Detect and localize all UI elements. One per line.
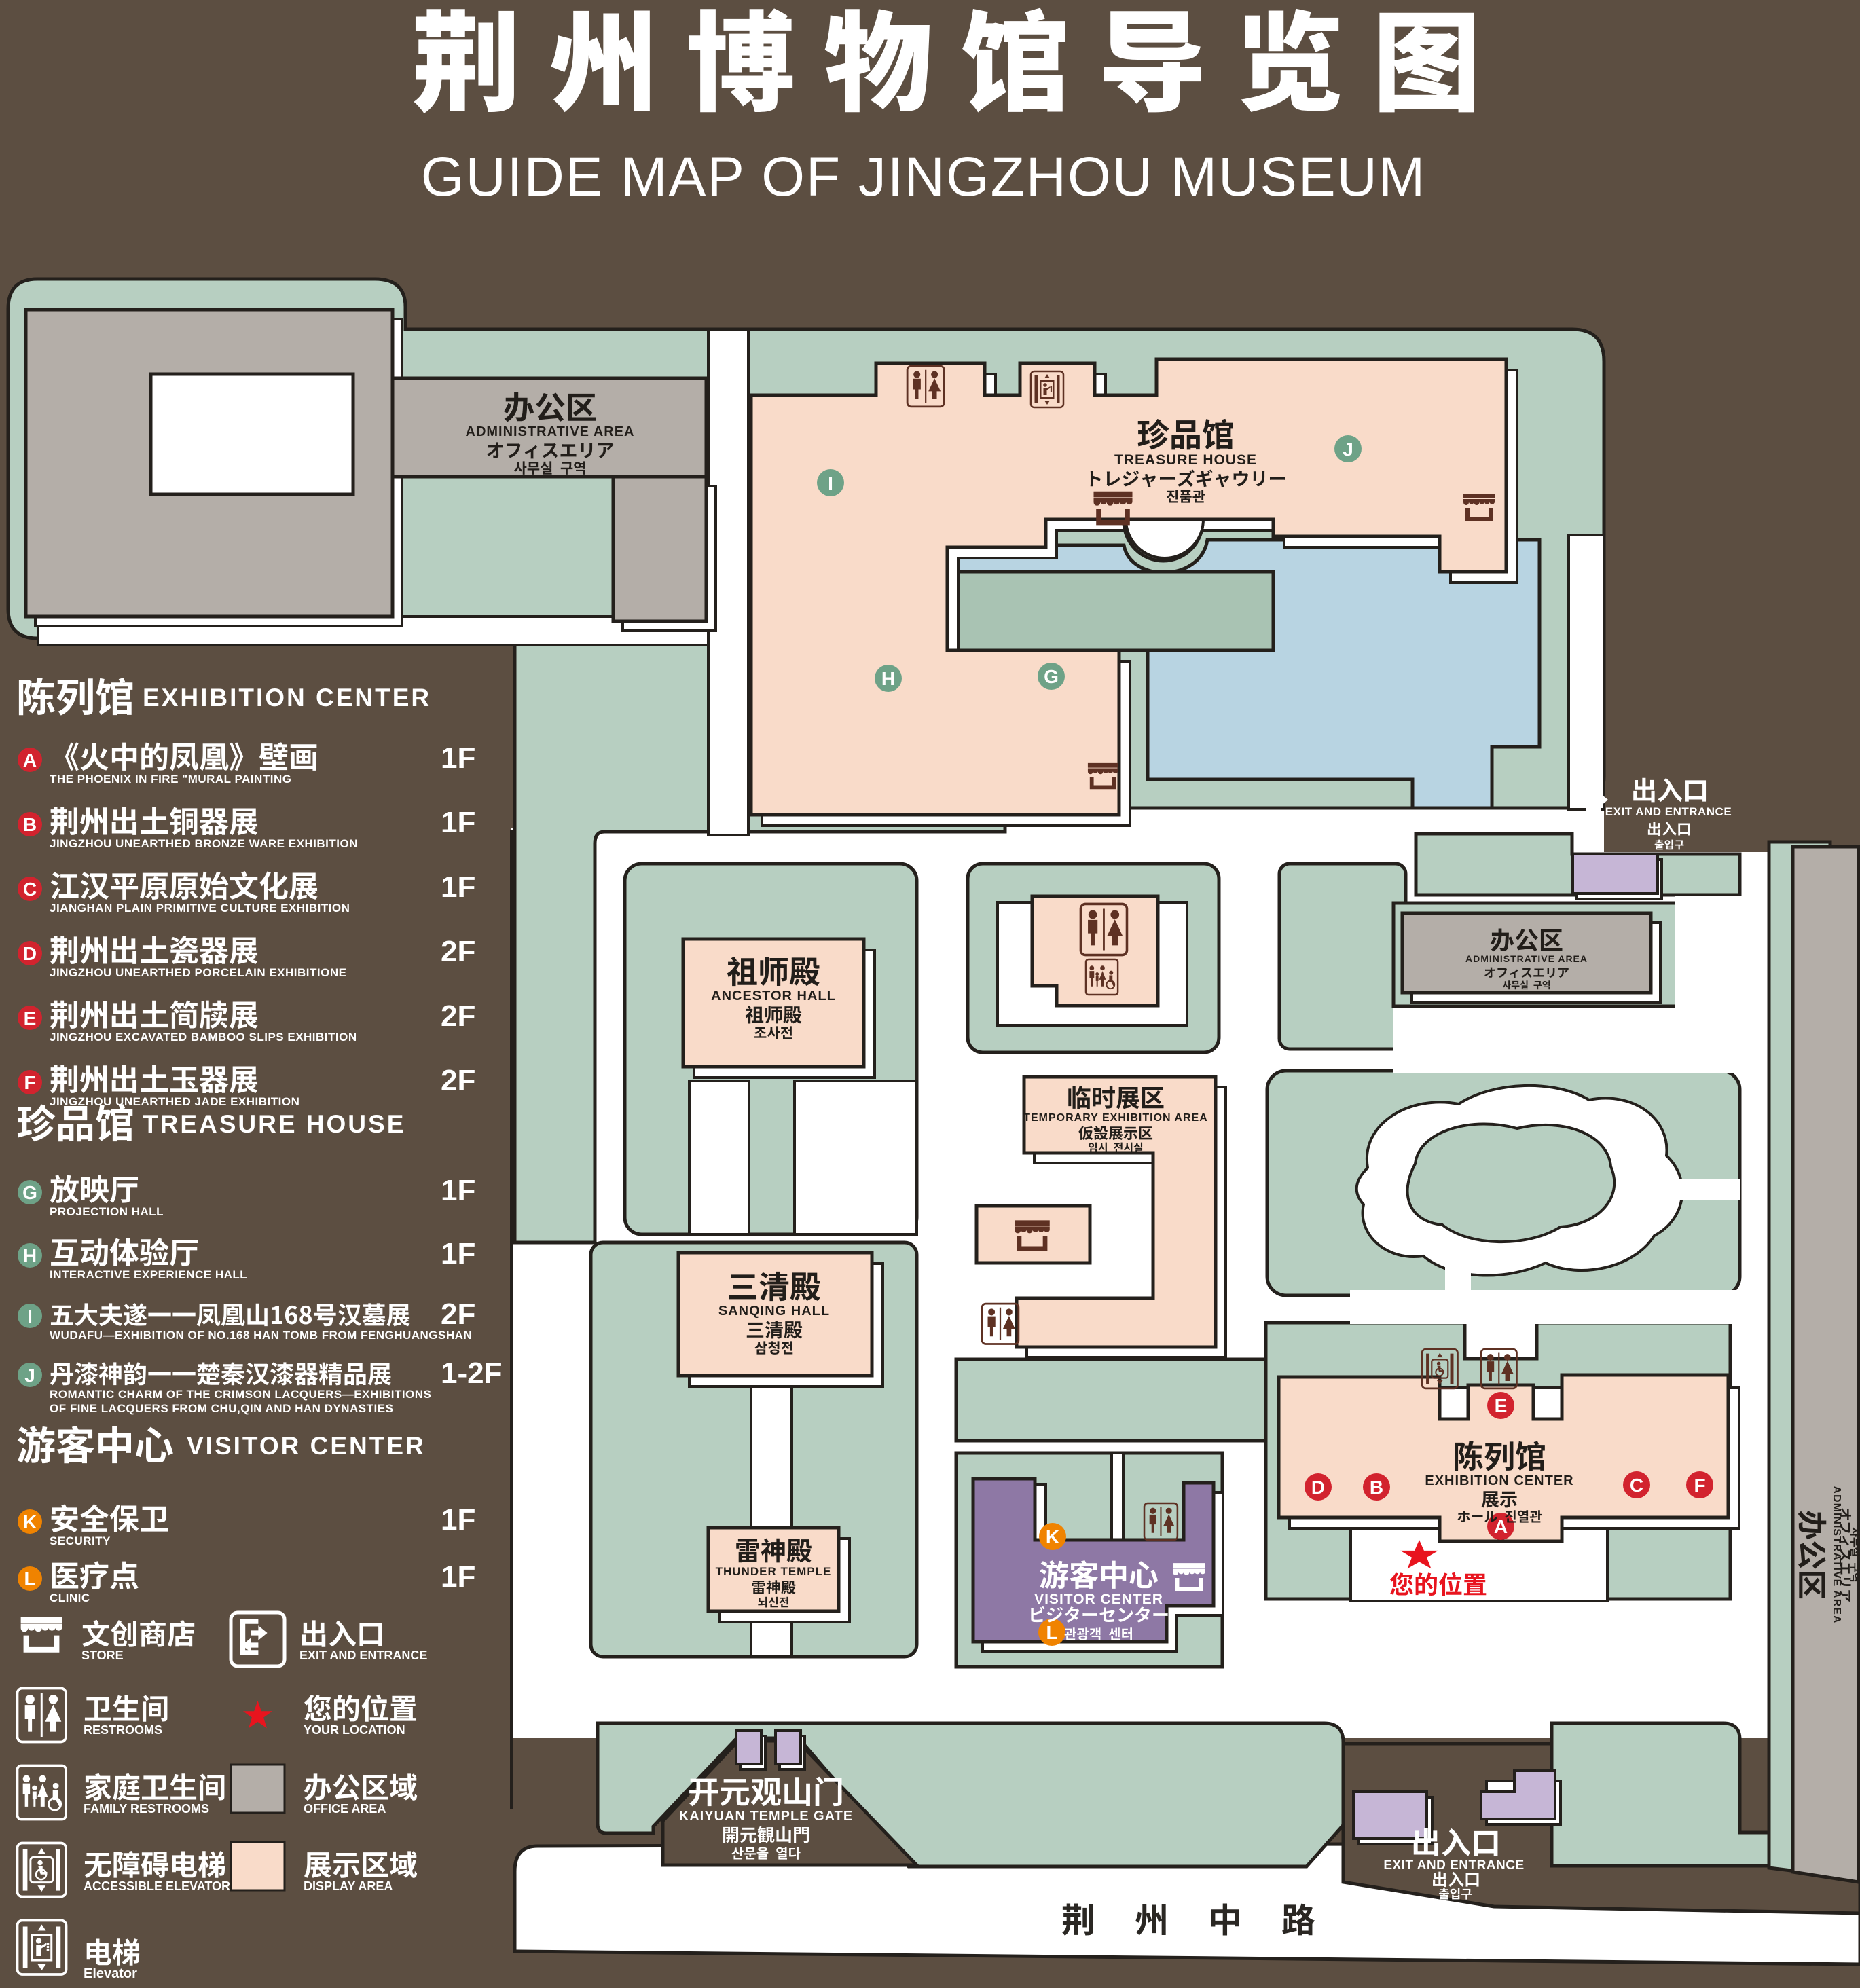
svg-text:EXHIBITION CENTER: EXHIBITION CENTER — [1425, 1473, 1573, 1488]
svg-text:THE PHOENIX IN FIRE "MURAL PAI: THE PHOENIX IN FIRE "MURAL PAINTING — [50, 773, 291, 786]
svg-text:ANCESTOR HALL: ANCESTOR HALL — [711, 989, 836, 1004]
svg-text:YOUR LOCATION: YOUR LOCATION — [304, 1723, 405, 1737]
svg-text:L: L — [1046, 1622, 1057, 1643]
svg-text:H: H — [23, 1245, 37, 1266]
svg-text:TREASURE HOUSE: TREASURE HOUSE — [1114, 452, 1257, 468]
svg-text:J: J — [1343, 439, 1353, 460]
svg-text:TEMPORARY EXHIBITION AREA: TEMPORARY EXHIBITION AREA — [1023, 1112, 1208, 1124]
svg-text:SECURITY: SECURITY — [50, 1534, 111, 1547]
svg-text:C: C — [1630, 1475, 1643, 1496]
svg-text:RESTROOMS: RESTROOMS — [84, 1723, 162, 1737]
svg-text:F: F — [1694, 1475, 1705, 1496]
svg-text:K: K — [1046, 1526, 1059, 1547]
svg-text:JINGZHOU EXCAVATED BAMBOO SLIP: JINGZHOU EXCAVATED BAMBOO SLIPS EXHIBITI… — [50, 1031, 357, 1044]
svg-text:FAMILY RESTROOMS: FAMILY RESTROOMS — [84, 1802, 209, 1816]
svg-text:DISPLAY AREA: DISPLAY AREA — [304, 1879, 393, 1893]
svg-text:2F: 2F — [441, 999, 475, 1033]
svg-text:E: E — [24, 1008, 37, 1029]
svg-text:1F: 1F — [441, 1237, 475, 1270]
svg-text:Elevator: Elevator — [84, 1966, 137, 1981]
svg-text:STORE: STORE — [81, 1649, 124, 1662]
svg-text:OFFICE AREA: OFFICE AREA — [304, 1802, 386, 1816]
svg-text:F: F — [24, 1072, 35, 1093]
svg-text:B: B — [1370, 1477, 1383, 1498]
svg-text:ADMINISTRATIVE AREA: ADMINISTRATIVE AREA — [466, 424, 635, 439]
svg-text:J: J — [24, 1365, 35, 1386]
svg-text:2F: 2F — [441, 935, 475, 968]
svg-text:JINGZHOU UNEARTHED PORCELAIN E: JINGZHOU UNEARTHED PORCELAIN EXHIBITIONE — [50, 966, 346, 979]
svg-text:1F: 1F — [441, 806, 475, 839]
svg-text:JINGZHOU UNEARTHED BRONZE WARE: JINGZHOU UNEARTHED BRONZE WARE EXHIBITIO… — [50, 837, 358, 850]
svg-text:1-2F: 1-2F — [441, 1357, 502, 1390]
svg-text:H: H — [881, 668, 895, 689]
svg-text:I: I — [27, 1306, 33, 1327]
svg-text:TREASURE HOUSE: TREASURE HOUSE — [143, 1110, 405, 1138]
svg-text:KAIYUAN TEMPLE GATE: KAIYUAN TEMPLE GATE — [679, 1809, 853, 1824]
svg-text:B: B — [23, 814, 37, 835]
svg-text:EXIT AND ENTRANCE: EXIT AND ENTRANCE — [1383, 1858, 1524, 1873]
svg-text:EXHIBITION CENTER: EXHIBITION CENTER — [143, 684, 431, 712]
svg-text:VISITOR CENTER: VISITOR CENTER — [1034, 1591, 1163, 1607]
svg-text:1F: 1F — [441, 1560, 475, 1594]
svg-text:ADMINISTRATIVE AREA: ADMINISTRATIVE AREA — [1831, 1486, 1842, 1624]
svg-text:G: G — [22, 1182, 37, 1203]
svg-text:SANQING HALL: SANQING HALL — [718, 1304, 830, 1319]
svg-text:ACCESSIBLE ELEVATOR: ACCESSIBLE ELEVATOR — [84, 1879, 230, 1893]
svg-text:1F: 1F — [441, 1503, 475, 1536]
svg-text:CLINIC: CLINIC — [50, 1591, 90, 1604]
svg-text:I: I — [828, 473, 833, 494]
svg-text:INTERACTIVE EXPERIENCE HALL: INTERACTIVE EXPERIENCE HALL — [50, 1268, 247, 1281]
svg-text:D: D — [1311, 1477, 1325, 1498]
svg-text:2F: 2F — [441, 1064, 475, 1097]
svg-text:OF FINE LACQUERS FROM CHU,QIN: OF FINE LACQUERS FROM CHU,QIN AND HAN DY… — [50, 1402, 393, 1415]
svg-text:JIANGHAN PLAIN PRIMITIVE CULTU: JIANGHAN PLAIN PRIMITIVE CULTURE EXHIBIT… — [50, 902, 350, 915]
svg-text:D: D — [23, 943, 37, 964]
svg-text:E: E — [1495, 1395, 1508, 1416]
svg-text:L: L — [24, 1568, 35, 1589]
svg-text:2F: 2F — [441, 1297, 475, 1331]
svg-text:ADMINISTRATIVE AREA: ADMINISTRATIVE AREA — [1465, 953, 1588, 964]
svg-text:G: G — [1044, 666, 1059, 687]
svg-text:C: C — [23, 879, 37, 900]
svg-text:ROMANTIC CHARM OF THE CRIMSON: ROMANTIC CHARM OF THE CRIMSON LACQUERS—E… — [50, 1388, 431, 1401]
svg-text:GUIDE MAP OF JINGZHOU MUSEUM: GUIDE MAP OF JINGZHOU MUSEUM — [421, 146, 1426, 208]
svg-text:1F: 1F — [441, 870, 475, 904]
svg-text:EXIT AND ENTRANCE: EXIT AND ENTRANCE — [299, 1649, 427, 1662]
svg-text:WUDAFU—EXHIBITION OF NO.168 HA: WUDAFU—EXHIBITION OF NO.168 HAN TOMB FRO… — [50, 1329, 472, 1342]
svg-text:EXIT AND ENTRANCE: EXIT AND ENTRANCE — [1605, 805, 1732, 818]
svg-text:1F: 1F — [441, 741, 475, 775]
svg-text:VISITOR CENTER: VISITOR CENTER — [187, 1432, 426, 1460]
svg-text:1F: 1F — [441, 1174, 475, 1207]
svg-text:A: A — [23, 750, 37, 771]
svg-text:THUNDER TEMPLE: THUNDER TEMPLE — [716, 1565, 832, 1578]
svg-text:PROJECTION HALL: PROJECTION HALL — [50, 1205, 164, 1218]
svg-text:K: K — [23, 1511, 37, 1532]
